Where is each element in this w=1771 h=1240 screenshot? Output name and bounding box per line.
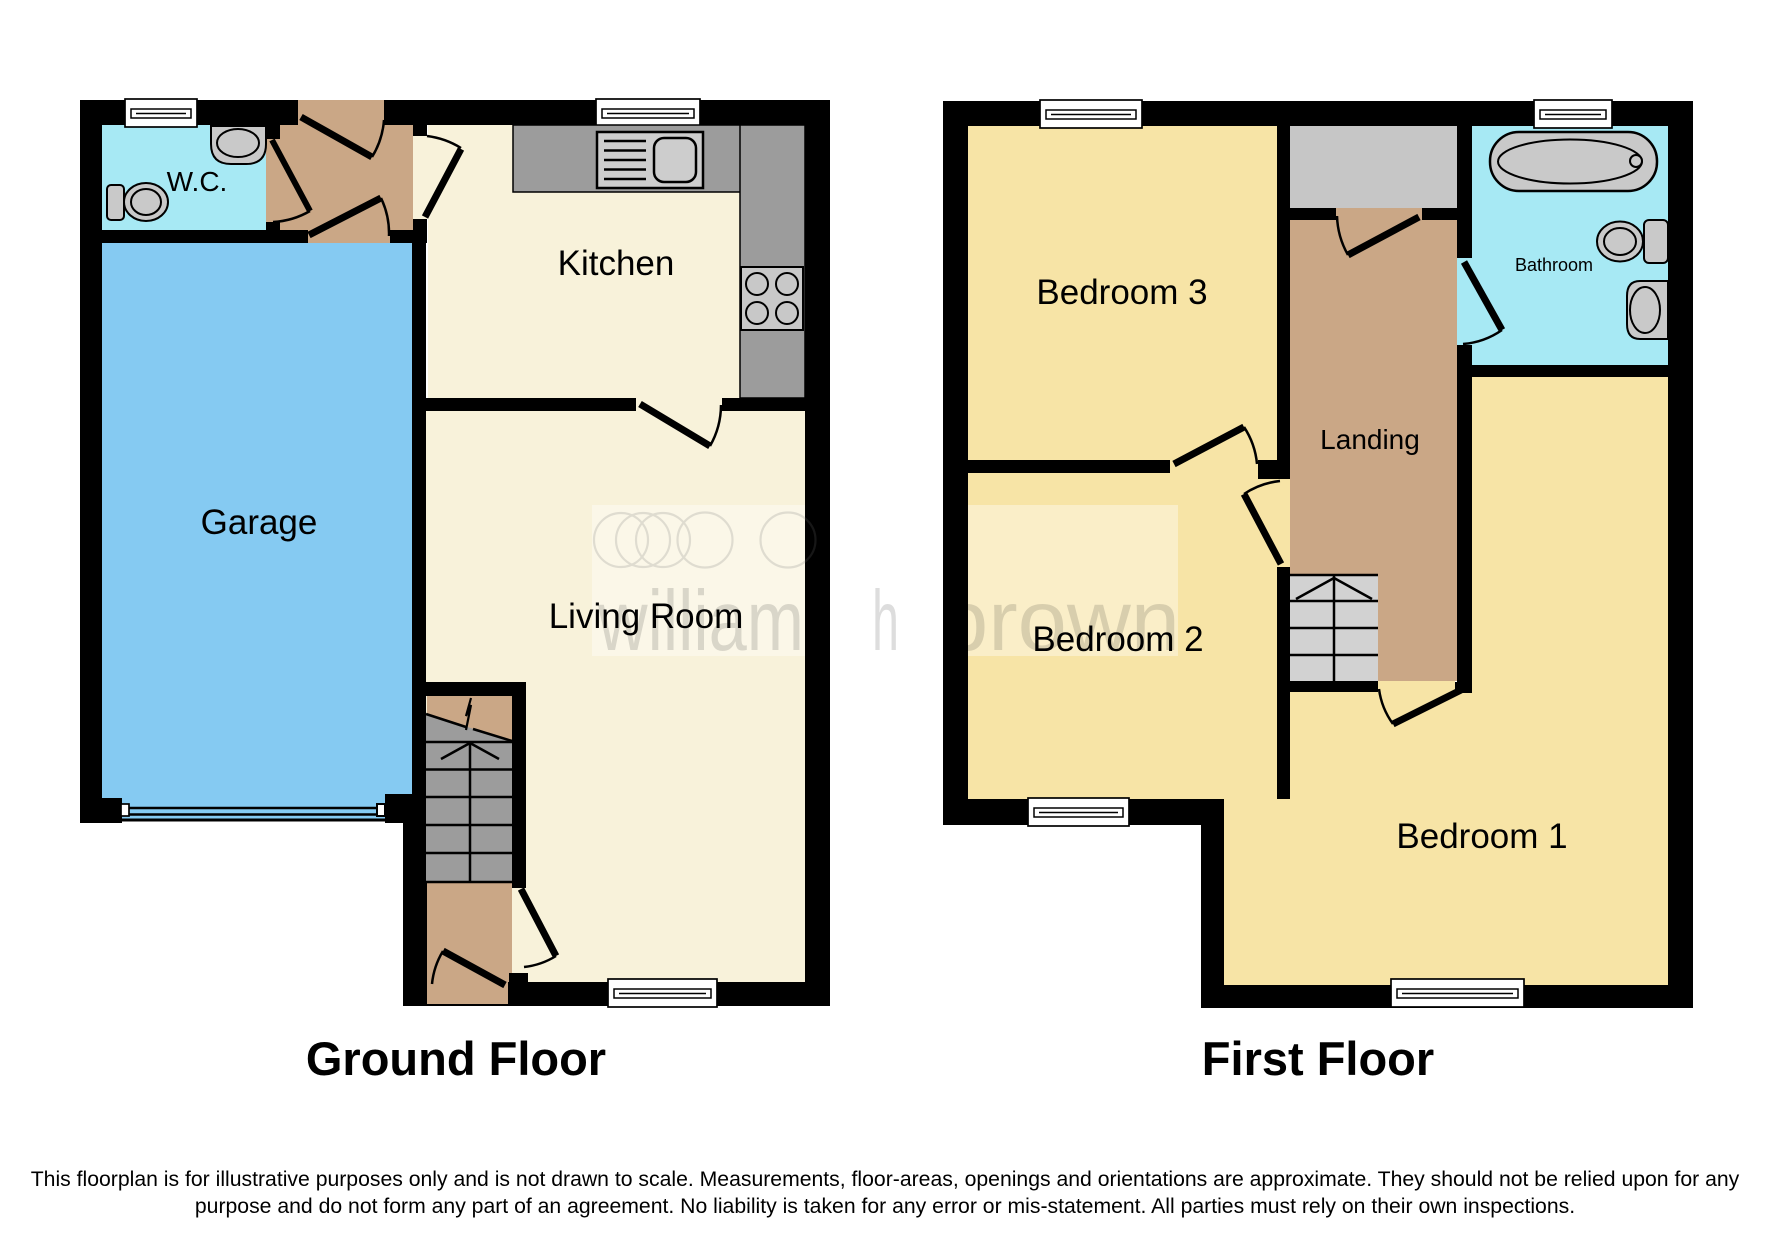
svg-text:Bathroom: Bathroom	[1515, 255, 1593, 275]
svg-text:W.C.: W.C.	[167, 166, 228, 197]
svg-text:h: h	[872, 574, 899, 669]
svg-text:Living Room: Living Room	[549, 597, 744, 636]
svg-text:This floorplan is for illustra: This floorplan is for illustrative purpo…	[31, 1168, 1740, 1191]
svg-text:purpose and do not form any pa: purpose and do not form any part of an a…	[195, 1195, 1575, 1218]
svg-text:Bedroom 3: Bedroom 3	[1036, 273, 1207, 312]
svg-text:Garage: Garage	[201, 503, 318, 542]
svg-text:Bedroom 1: Bedroom 1	[1396, 817, 1567, 856]
svg-text:Kitchen: Kitchen	[558, 244, 675, 283]
svg-text:First Floor: First Floor	[1202, 1032, 1434, 1085]
svg-text:Landing: Landing	[1320, 424, 1420, 455]
svg-text:Bedroom 2: Bedroom 2	[1032, 620, 1203, 659]
svg-text:Ground Floor: Ground Floor	[306, 1032, 606, 1085]
